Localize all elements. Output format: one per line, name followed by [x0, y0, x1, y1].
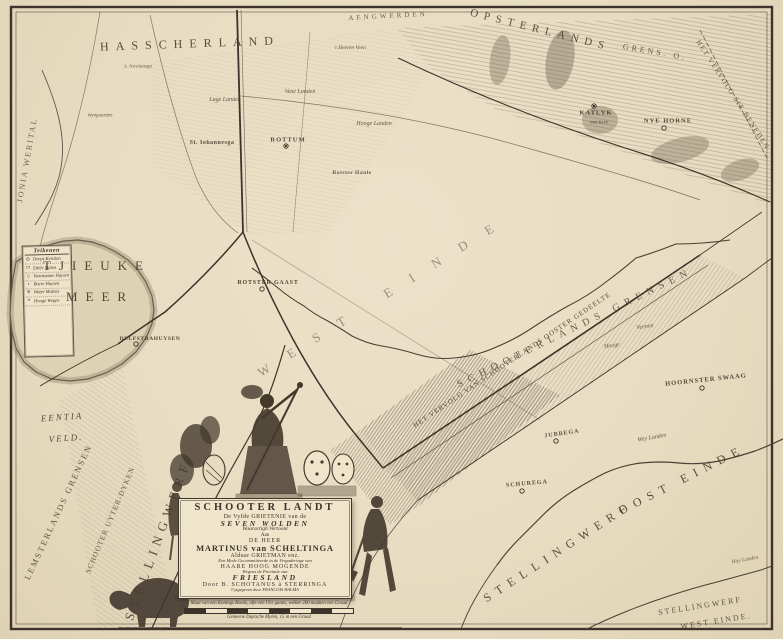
scale-segment — [248, 609, 269, 613]
map-legend: Teikenen ⊙Dorps Kercken▭Edele Staten⌂Voo… — [22, 244, 75, 357]
legend-label: Voornaame Huysen — [33, 272, 69, 280]
cartouche-line: FRIESLAND — [179, 574, 351, 582]
cartouche-line: Uytgegeven door FRANCOIS HALMA — [179, 588, 351, 592]
map-engraving — [0, 0, 783, 639]
scale-segment — [185, 609, 206, 613]
scale-segment — [269, 609, 290, 613]
legend-label: Water Molens — [34, 289, 60, 296]
legend-symbol: • — [25, 281, 31, 288]
scale-caption-bottom: Gemeene Duytsche Mylen, 15 in een Graad — [163, 615, 375, 621]
legend-label: Edele Staten — [33, 264, 56, 271]
legend-label: Dorps Kercken — [33, 256, 61, 263]
scale-panel: Maat van een Konings Roede, ofte een Uhr… — [163, 601, 375, 621]
cartouche-line: MARTINUS van SCHELTINGA — [179, 544, 351, 553]
scale-segment — [290, 609, 311, 613]
cartouche-plaque: SCHOOTER LANDTDe Vyfde GRIETENIE van deS… — [178, 498, 352, 599]
field-hatch-northwest — [150, 28, 430, 236]
legend-symbol: ▭ — [25, 265, 31, 272]
map-sheet: Teikenen ⊙Dorps Kercken▭Edele Staten⌂Voo… — [0, 0, 783, 639]
legend-header: Teikenen — [25, 247, 69, 255]
legend-label: Hooge Wegen — [34, 297, 60, 304]
legend-label: Boere Huysen — [33, 281, 59, 288]
legend-symbol: ≡ — [26, 298, 32, 305]
scale-segment — [206, 609, 227, 613]
legend-entry: ≡Hooge Wegen — [26, 297, 70, 306]
scale-segment — [311, 609, 332, 613]
compagnie-strip-southeast — [330, 212, 772, 628]
scale-segment — [332, 609, 353, 613]
cartouche-line: SCHOOTER LANDT — [179, 503, 351, 514]
legend-symbol: ⊙ — [25, 256, 31, 263]
legend-symbol: ⌂ — [25, 273, 31, 280]
scale-bar — [184, 608, 354, 614]
scale-segment — [227, 609, 248, 613]
compagnie-band-north — [396, 14, 772, 205]
legend-symbol: ✳ — [26, 289, 32, 296]
scale-caption-top: Maat van een Konings Roede, ofte een Uhr… — [163, 601, 375, 607]
